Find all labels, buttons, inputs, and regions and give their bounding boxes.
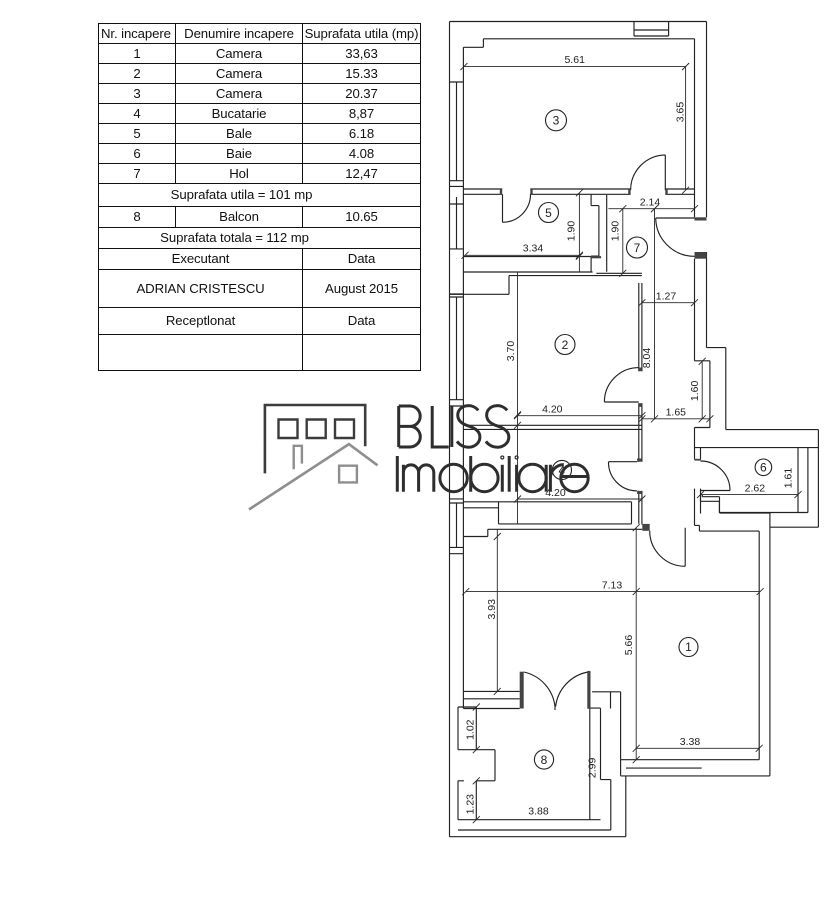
svg-text:1.23: 1.23 bbox=[465, 794, 477, 815]
svg-text:2.99: 2.99 bbox=[586, 758, 598, 779]
svg-text:6: 6 bbox=[760, 460, 767, 474]
svg-text:2: 2 bbox=[562, 338, 569, 352]
svg-text:5.61: 5.61 bbox=[564, 54, 585, 66]
svg-text:4.20: 4.20 bbox=[542, 404, 563, 416]
svg-text:2.62: 2.62 bbox=[745, 483, 766, 495]
svg-text:3.70: 3.70 bbox=[505, 341, 517, 362]
svg-text:3.34: 3.34 bbox=[523, 243, 544, 255]
svg-text:1.27: 1.27 bbox=[656, 291, 677, 303]
svg-text:2.14: 2.14 bbox=[640, 197, 661, 209]
svg-text:1.90: 1.90 bbox=[566, 221, 578, 242]
svg-text:3.93: 3.93 bbox=[486, 599, 498, 620]
svg-text:7.13: 7.13 bbox=[602, 579, 623, 591]
svg-text:5.66: 5.66 bbox=[623, 635, 635, 656]
svg-text:1.02: 1.02 bbox=[465, 719, 477, 740]
svg-text:1.60: 1.60 bbox=[689, 381, 701, 402]
svg-text:1: 1 bbox=[685, 640, 692, 654]
svg-text:3.38: 3.38 bbox=[680, 736, 701, 748]
svg-text:4.20: 4.20 bbox=[545, 487, 566, 499]
svg-text:3.65: 3.65 bbox=[675, 102, 687, 123]
svg-text:1.61: 1.61 bbox=[783, 468, 795, 489]
svg-text:3: 3 bbox=[553, 114, 560, 128]
svg-text:8: 8 bbox=[541, 753, 548, 767]
svg-text:5: 5 bbox=[545, 206, 552, 220]
svg-text:3.88: 3.88 bbox=[528, 806, 549, 818]
svg-text:1.90: 1.90 bbox=[610, 221, 622, 242]
svg-text:8.04: 8.04 bbox=[641, 348, 653, 369]
svg-text:7: 7 bbox=[634, 241, 641, 255]
svg-text:1.65: 1.65 bbox=[666, 407, 687, 419]
